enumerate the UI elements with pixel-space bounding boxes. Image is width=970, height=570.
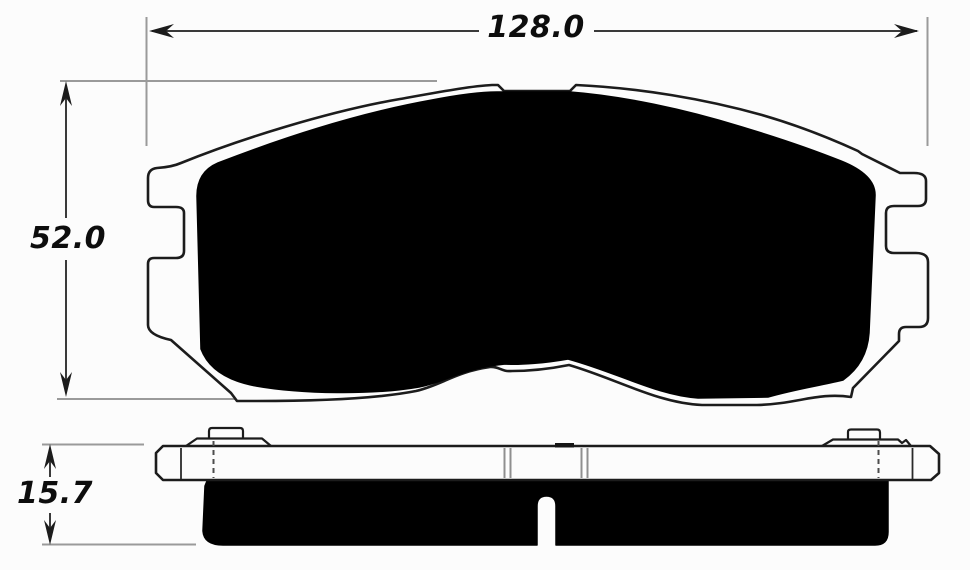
- thickness-dimension-label: 15.7: [14, 479, 96, 509]
- plate-top-notch-mark: [555, 443, 574, 448]
- left-clip-tab: [209, 428, 243, 438]
- height-dimension-label: 52.0: [27, 224, 109, 254]
- brake-pad-technical-drawing: 128.0 52.0 15.7: [0, 0, 970, 570]
- friction-material-front: [197, 92, 875, 398]
- pad-front-view: [148, 85, 928, 405]
- backing-plate-side: [156, 446, 939, 480]
- drawing-canvas: [0, 0, 970, 570]
- pad-side-view: [156, 428, 939, 545]
- right-clip: [822, 430, 911, 447]
- left-clip: [186, 428, 271, 446]
- right-clip-tab: [848, 430, 880, 440]
- friction-material-side: [203, 481, 888, 545]
- width-dimension-label: 128.0: [484, 13, 587, 43]
